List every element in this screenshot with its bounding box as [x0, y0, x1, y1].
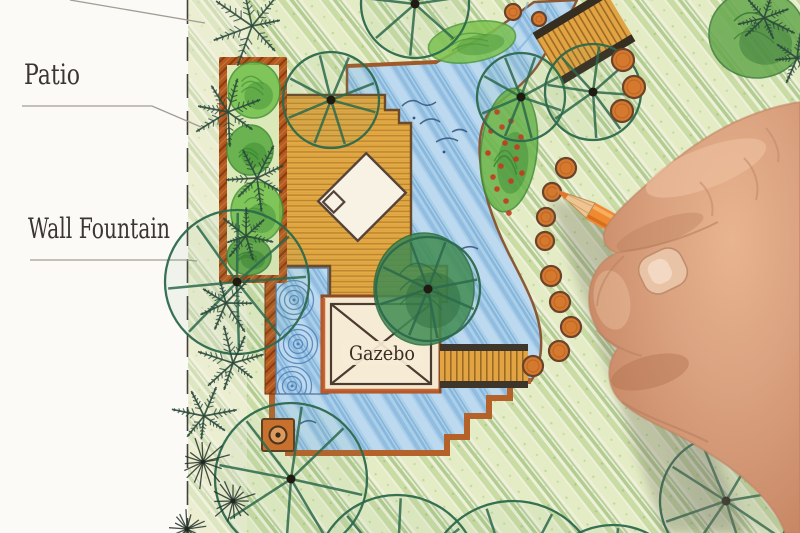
fern-barb	[277, 21, 278, 22]
stepping-stone	[505, 4, 521, 20]
stone	[612, 49, 634, 71]
fern-barb	[197, 129, 199, 130]
fern-barb	[782, 27, 783, 31]
berry-dot	[485, 150, 491, 156]
fern-barb	[768, 27, 771, 28]
fern-barb	[280, 190, 281, 191]
gazebo-label: Gazebo	[349, 341, 415, 365]
fern-barb	[752, 25, 756, 26]
boardwalk	[440, 344, 528, 388]
fern-barb	[740, 24, 741, 25]
fern-barb	[202, 313, 203, 314]
fern-barb	[269, 45, 270, 48]
stepping-stone	[549, 341, 569, 361]
fern-barb	[245, 209, 246, 210]
tree-trunk-dot	[424, 285, 433, 294]
spike-center	[201, 460, 206, 465]
fern-barb	[242, 329, 243, 331]
tree-symbol	[376, 237, 480, 341]
fern-barb	[787, 80, 788, 81]
fern-barb	[277, 19, 278, 20]
fern-barb	[213, 87, 214, 89]
fern-barb	[240, 346, 244, 347]
fern-barb	[752, 2, 753, 4]
fern-barb	[216, 327, 217, 328]
fern-barb	[228, 180, 229, 181]
stone	[536, 232, 554, 250]
fern-barb	[246, 189, 247, 192]
fern-barb	[787, 73, 790, 74]
fern-barb	[261, 208, 263, 209]
fern-barb	[281, 167, 282, 168]
fern-barb	[211, 379, 214, 380]
stepping-stone	[541, 266, 561, 286]
fern-barb	[195, 408, 200, 409]
fern-barb	[248, 187, 249, 191]
stepping-stone	[550, 292, 570, 312]
fern-barb	[248, 374, 250, 375]
stone	[541, 266, 561, 286]
fern-barb	[243, 281, 244, 284]
fern-barb	[792, 31, 794, 32]
fern-barb	[758, 23, 759, 28]
fern-barb	[756, 26, 757, 30]
fern-barb	[225, 370, 226, 376]
fern-barb	[219, 285, 221, 286]
stepping-stone	[561, 317, 581, 337]
fern-barb	[210, 310, 211, 313]
fern-barb	[782, 9, 783, 11]
stepping-stone	[556, 158, 576, 178]
plan-drawing: Gazebo Patio Wall Fountain	[0, 0, 800, 533]
fern-barb	[750, 28, 753, 29]
fern-barb	[245, 160, 249, 161]
berry-dot	[503, 198, 509, 204]
fern-barb	[780, 48, 782, 49]
fern-barb	[240, 284, 241, 288]
margin-label-patio: Patio	[24, 58, 80, 91]
fern-barb	[243, 337, 244, 338]
stepping-stone	[537, 208, 555, 226]
fern-barb	[772, 37, 773, 38]
tree-symbol	[283, 52, 379, 148]
fern-barb	[250, 302, 251, 303]
fern-barb	[222, 373, 223, 378]
fern-barb	[252, 100, 253, 103]
stone	[556, 158, 576, 178]
berry-dot	[502, 140, 508, 146]
ripple-center	[297, 343, 300, 346]
fern-barb	[216, 319, 219, 320]
stepping-stone	[536, 232, 554, 250]
fern-barb	[194, 404, 198, 405]
fern-barb	[244, 151, 245, 153]
tree-trunk-dot	[287, 475, 296, 484]
tree-trunk-dot	[517, 93, 526, 102]
fern-barb	[777, 60, 778, 61]
fern-barb	[770, 31, 773, 32]
fern-barb	[257, 226, 260, 227]
fern-barb	[265, 182, 266, 187]
fern-barb	[233, 409, 234, 411]
berry-dot	[506, 210, 512, 216]
fern-barb	[246, 165, 251, 166]
fern-barb	[214, 388, 215, 389]
fern-barb	[204, 290, 205, 291]
fern-barb	[251, 254, 253, 255]
fern-barb	[237, 292, 242, 293]
fern-barb	[202, 437, 203, 438]
fern-barb	[244, 186, 248, 187]
fern-barb	[220, 426, 222, 427]
fern-barb	[193, 401, 196, 402]
stone	[550, 292, 570, 312]
berry-dot	[514, 144, 520, 150]
stepping-stone	[611, 100, 633, 122]
spike-center	[185, 527, 190, 532]
fern-barb	[191, 432, 192, 434]
stone	[561, 317, 581, 337]
fern-barb	[267, 158, 271, 159]
berry-dot	[508, 178, 514, 184]
fern-barb	[231, 241, 232, 243]
fern-barb	[225, 387, 226, 388]
stepping-stone	[523, 356, 543, 376]
fern-barb	[786, 10, 787, 11]
fern-barb	[223, 329, 225, 330]
fern-barb	[262, 37, 267, 38]
fern-barb	[234, 240, 235, 242]
berry-dot	[494, 186, 500, 192]
fern-barb	[266, 41, 270, 42]
berry-dot	[490, 174, 496, 180]
fern-barb	[270, 240, 271, 241]
stone	[623, 76, 645, 98]
fern-barb	[233, 252, 234, 254]
fern-barb	[251, 226, 252, 231]
fern-barb	[193, 392, 194, 393]
fern-barb	[259, 33, 265, 34]
fern-barb	[240, 288, 244, 289]
tree-trunk-dot	[589, 88, 598, 97]
fern-barb	[217, 4, 219, 5]
stepping-stone	[623, 76, 645, 98]
stone	[611, 100, 633, 122]
fern-barb	[217, 39, 218, 41]
fern-barb	[754, 4, 755, 7]
fern-barb	[739, 23, 740, 24]
stone	[505, 4, 521, 20]
fern-barb	[250, 127, 252, 128]
stepping-stone	[532, 12, 546, 26]
berry-dot	[519, 170, 525, 176]
berry-dot	[513, 156, 519, 162]
stone	[537, 208, 555, 226]
landscape-plan-photo: Gazebo Patio Wall Fountain	[0, 0, 800, 533]
tree-trunk-dot	[327, 96, 336, 105]
stone	[523, 356, 543, 376]
stepping-stone	[612, 49, 634, 71]
ripple-center	[291, 385, 294, 388]
spike-center	[231, 499, 236, 504]
fern-barb	[261, 354, 262, 356]
berry-dot	[498, 163, 504, 169]
stone	[532, 12, 546, 26]
fern-barb	[273, 167, 274, 170]
fern-barb	[242, 189, 245, 190]
stone	[549, 341, 569, 361]
margin-label-wall-fountain: Wall Fountain	[28, 212, 170, 245]
fern-barb	[252, 258, 253, 259]
fern-barb	[226, 223, 228, 224]
